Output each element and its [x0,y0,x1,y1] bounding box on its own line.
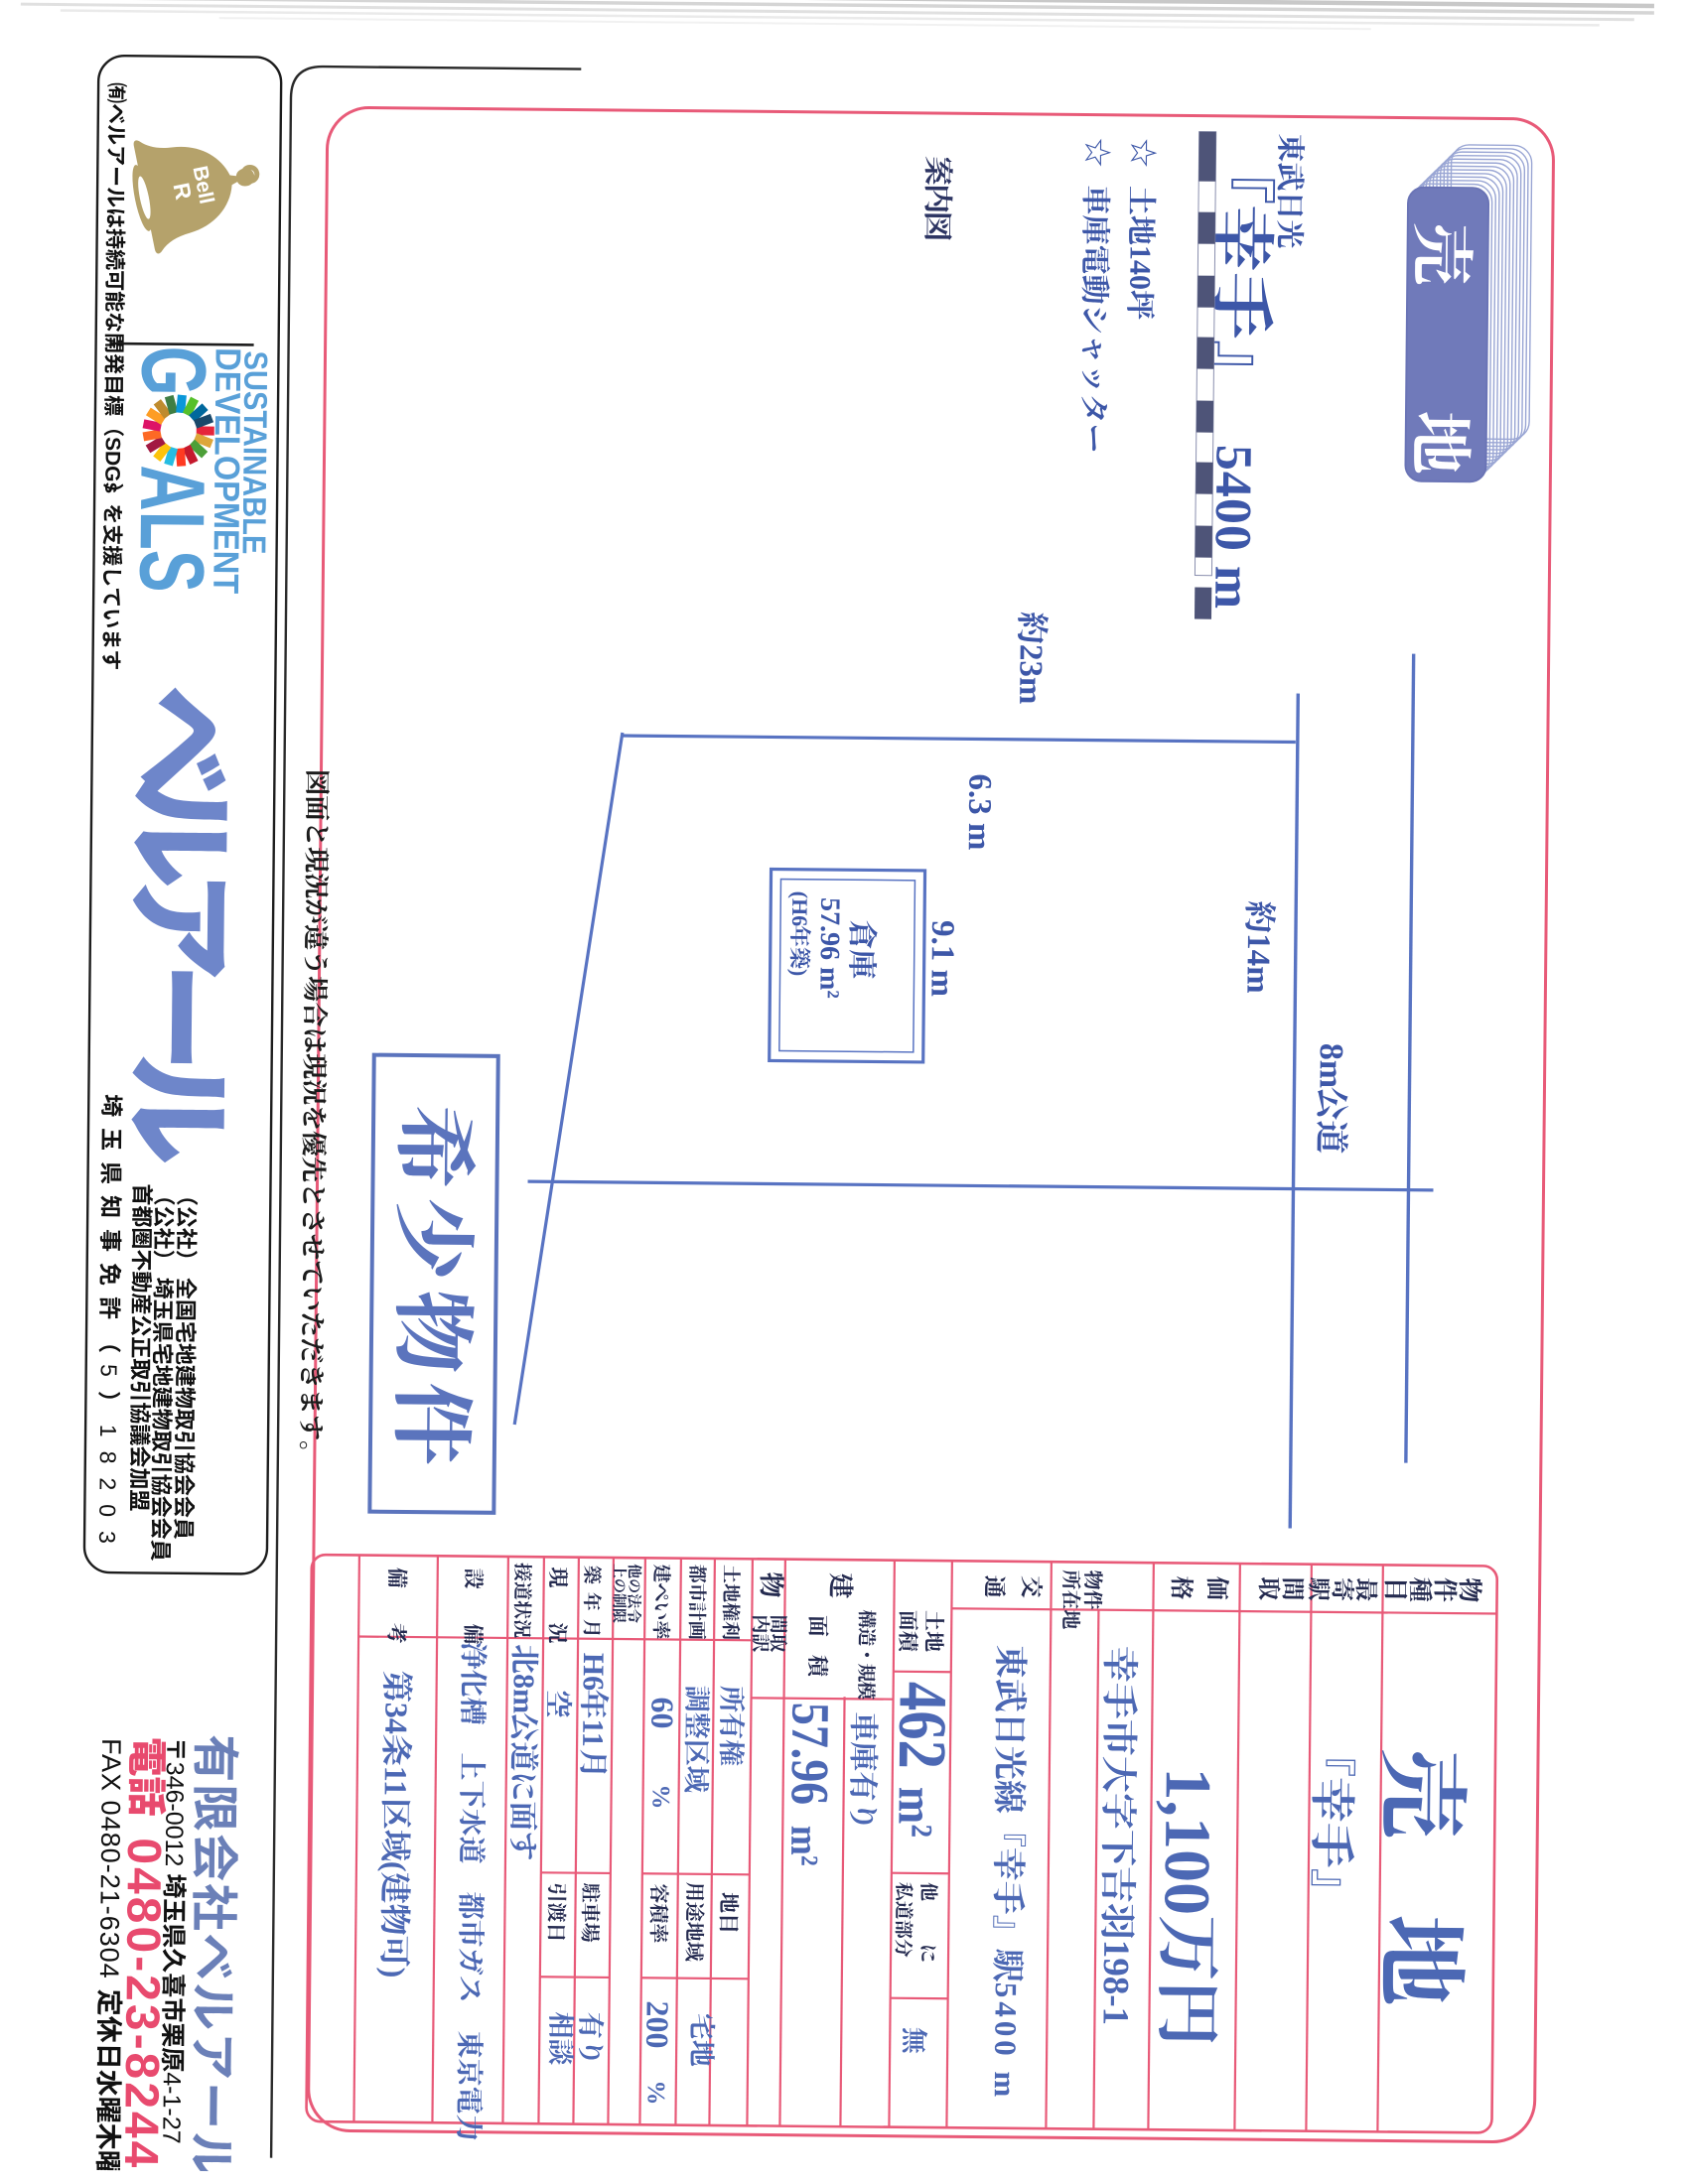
svg-text:60: 60 [644,1697,680,1728]
svg-text:198-1: 198-1 [1094,1940,1136,2026]
svg-text:): ) [376,1967,412,1978]
svg-text:FAX 0480-21-6304: FAX 0480-21-6304 [94,1738,126,1979]
svg-text:m²: m² [781,1826,826,1866]
svg-text:8m: 8m [1312,1043,1348,1089]
svg-text:H6: H6 [577,1653,610,1692]
svg-text:ALS: ALS [120,465,222,593]
svg-text:34: 34 [378,1703,414,1734]
svg-text:9.1 m: 9.1 m [923,920,960,997]
svg-text:462: 462 [885,1682,961,1770]
svg-text:6.3 m: 6.3 m [961,773,998,850]
svg-text:11: 11 [576,1718,609,1747]
svg-text:57.96 m²: 57.96 m² [813,897,845,999]
svg-text:%: % [646,1784,673,1809]
svg-text:G: G [122,345,223,396]
svg-text:5400 m: 5400 m [988,1982,1024,2102]
svg-text:11: 11 [378,1766,414,1797]
svg-text:m²: m² [888,1787,942,1838]
svg-text:14m: 14m [1239,933,1276,994]
svg-text:%: % [642,2080,669,2105]
svg-text:18203: 18203 [94,1425,121,1558]
svg-text:23m: 23m [1012,644,1049,705]
svg-text:(H6: (H6 [787,891,812,927]
svg-text:200: 200 [639,2000,675,2048]
svg-text:5: 5 [95,1364,121,1391]
svg-text:57.96: 57.96 [780,1703,841,1806]
svg-text:140: 140 [1123,245,1156,290]
svg-text:8m: 8m [506,1674,539,1713]
svg-text:(: ( [377,1861,413,1872]
svg-text:): ) [787,969,812,977]
svg-text:1,100: 1,100 [1150,1767,1223,1915]
